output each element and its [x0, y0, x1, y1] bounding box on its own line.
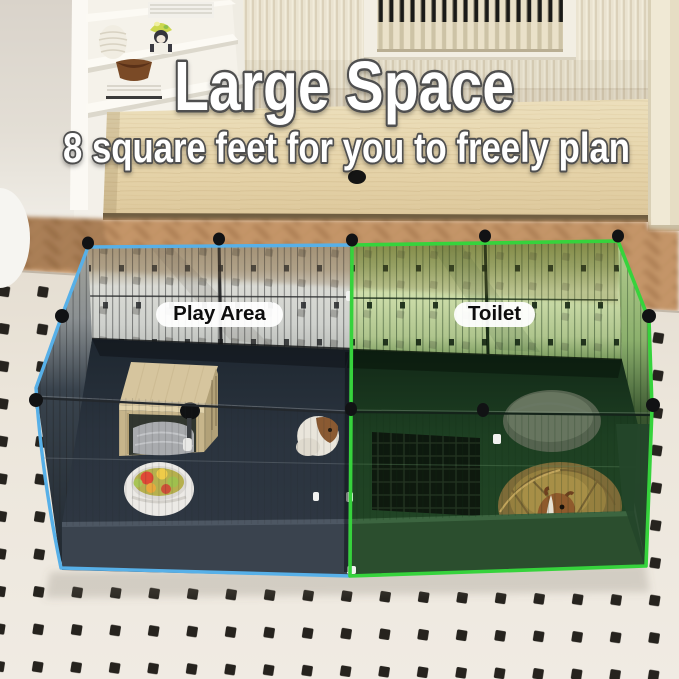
svg-text:Large Space: Large Space — [174, 47, 514, 125]
svg-text:Toilet: Toilet — [468, 302, 521, 325]
svg-text:8 square feet for you to freel: 8 square feet for you to freely plan — [63, 124, 630, 171]
svg-text:Play Area: Play Area — [173, 302, 266, 325]
